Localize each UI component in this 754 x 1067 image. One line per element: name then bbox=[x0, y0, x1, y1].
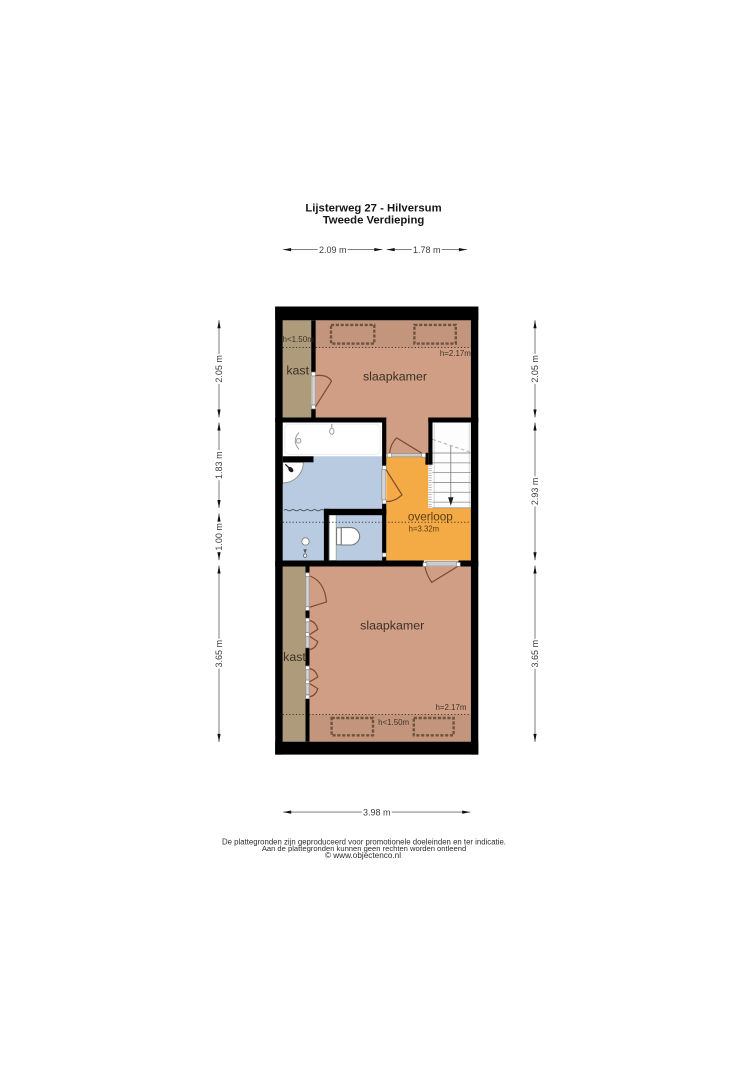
svg-text:Lijsterweg 27 - Hilversum: Lijsterweg 27 - Hilversum bbox=[305, 203, 441, 215]
svg-text:3.65 m: 3.65 m bbox=[214, 640, 224, 668]
svg-text:2.93 m: 2.93 m bbox=[530, 478, 540, 506]
svg-text:h<1.50m: h<1.50m bbox=[378, 718, 409, 727]
svg-text:kast: kast bbox=[286, 363, 309, 377]
svg-text:2.05 m: 2.05 m bbox=[530, 355, 540, 383]
svg-text:slaapkamer: slaapkamer bbox=[363, 370, 427, 384]
svg-text:kast: kast bbox=[283, 650, 306, 664]
svg-text:h=2.17m: h=2.17m bbox=[440, 349, 471, 358]
svg-text:h=2.17m: h=2.17m bbox=[436, 703, 467, 712]
svg-text:slaapkamer: slaapkamer bbox=[360, 618, 424, 632]
svg-text:Tweede Verdieping: Tweede Verdieping bbox=[323, 215, 425, 227]
svg-text:h<1.50m: h<1.50m bbox=[283, 335, 315, 344]
svg-text:2.05 m: 2.05 m bbox=[214, 355, 224, 383]
svg-text:2.09 m: 2.09 m bbox=[319, 245, 347, 255]
svg-text:1.00 m: 1.00 m bbox=[214, 523, 224, 551]
svg-text:overloop: overloop bbox=[408, 510, 453, 523]
svg-text:© www.objectenco.nl: © www.objectenco.nl bbox=[325, 851, 401, 860]
svg-text:1.78 m: 1.78 m bbox=[413, 245, 441, 255]
svg-text:3.98 m: 3.98 m bbox=[363, 807, 391, 817]
svg-text:3.65 m: 3.65 m bbox=[530, 640, 540, 668]
svg-text:1.83 m: 1.83 m bbox=[214, 451, 224, 479]
svg-text:h=3.32m: h=3.32m bbox=[409, 525, 440, 534]
